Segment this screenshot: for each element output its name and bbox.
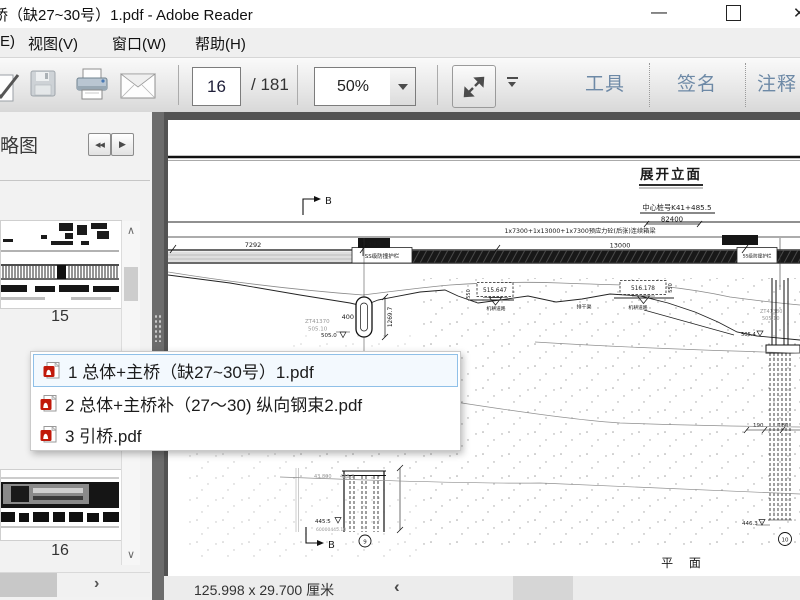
save-icon[interactable]: [30, 70, 56, 98]
borehole-elev-right: 505.10: [762, 316, 780, 322]
pier-number-9: 9: [363, 540, 367, 546]
plan-view-title: 平 面: [661, 556, 707, 570]
thumbnail-15-preview: [1, 221, 119, 306]
panel-options-button[interactable]: ▶: [111, 133, 134, 156]
menu-item-label: 2 总体+主桥补（27～30) 纵向钢束2.pdf: [65, 391, 362, 416]
pdf-file-icon: [43, 362, 60, 379]
menu-bar: E) 视图(V) 窗口(W) 帮助(H): [0, 28, 800, 58]
fill-sign-icon[interactable]: [0, 68, 21, 104]
pier-number-10: 10: [782, 538, 789, 544]
elevation-505-4: 505.4: [741, 332, 757, 338]
station-label: 中心桩号K41+485.5: [642, 203, 711, 212]
bridge-elevation-drawing: SS级防撞护栏 SS级防撞护栏 防撞网 防撞网 展开立面 中心桩号K41+485…: [168, 120, 800, 576]
panel-title: 略图: [0, 131, 38, 158]
toolbar-separator: [297, 65, 298, 105]
page-number-input[interactable]: 16: [192, 67, 241, 106]
title-bar: 桥（缺27~30号）1.pdf - Adobe Reader — ✕: [0, 0, 800, 28]
section-marker-b-bottom: B: [328, 540, 335, 551]
dim-7292: 7292: [245, 241, 262, 249]
borehole-zt41370: ZT41370: [305, 319, 330, 325]
menu-edit-partial[interactable]: E): [0, 33, 15, 50]
document-horizontal-scroll-thumb[interactable]: [513, 576, 573, 600]
elevation-446-3: 446.3: [742, 521, 758, 527]
zoom-dropdown-button[interactable]: [390, 67, 416, 106]
toolbar-separator: [745, 63, 747, 107]
menu-item-document-2[interactable]: 2 总体+主桥补（27～30) 纵向钢束2.pdf: [31, 388, 460, 419]
dim-550-right: 550: [668, 283, 674, 293]
document-size-label: 125.998 x 29.700 厘米: [194, 580, 334, 600]
divider-grip-icon: [154, 314, 162, 342]
fit-window-button[interactable]: [452, 65, 496, 108]
guardrail-label-left: SS级防撞护栏: [365, 252, 400, 260]
geo-445-10: 60000445.10: [316, 527, 346, 533]
page-total-label: / 181: [251, 75, 289, 95]
toolbar-separator: [437, 65, 438, 105]
drawing-title: 展开立面: [640, 166, 702, 183]
toolbar-separator: [649, 63, 651, 107]
maximize-button[interactable]: [726, 5, 741, 21]
window-title: 桥（缺27~30号）1.pdf - Adobe Reader: [0, 4, 253, 25]
dim-180: 180: [778, 423, 789, 429]
close-button[interactable]: ✕: [793, 4, 800, 22]
section-marker-b-top: B: [325, 196, 332, 207]
thumbnail-16-preview: [1, 470, 119, 538]
panel-divider: [0, 180, 150, 181]
dim-13000: 13000: [610, 242, 631, 250]
resize-arrows-icon: [462, 75, 486, 99]
borehole-elev-mid: 505.10: [308, 327, 328, 333]
collapse-panel-button[interactable]: ◀◀: [88, 133, 111, 156]
thumbnail-16-label[interactable]: 16: [0, 542, 120, 560]
thumbnails-horizontal-scrollbar[interactable]: ›: [0, 572, 150, 597]
dim-190: 190: [753, 423, 764, 429]
chevron-down-icon: [398, 84, 408, 90]
elevation-505-0: 505.0: [321, 333, 337, 339]
menu-view[interactable]: 视图(V): [28, 33, 78, 54]
sign-button[interactable]: 签名: [661, 69, 733, 96]
menu-item-label: 1 总体+主桥（缺27~30号）1.pdf: [68, 358, 314, 383]
pier-width-400: 400: [342, 313, 354, 321]
vertical-scroll-thumb[interactable]: [124, 267, 138, 301]
zoom-level-input[interactable]: 50%: [314, 67, 392, 106]
menu-item-document-1[interactable]: 1 总体+主桥（缺27~30号）1.pdf: [33, 354, 458, 387]
minimize-button[interactable]: —: [642, 0, 676, 26]
print-icon[interactable]: [74, 68, 110, 102]
elevation-516-178: 516.178: [631, 286, 655, 292]
pdf-file-icon: [40, 426, 57, 443]
menu-item-document-3[interactable]: 3 引桥.pdf: [31, 419, 460, 450]
horizontal-scroll-thumb[interactable]: [0, 573, 57, 597]
pier-height-1269: 1269.7: [388, 307, 394, 328]
menu-item-label: 3 引桥.pdf: [65, 422, 142, 447]
comment-button[interactable]: 注释: [757, 69, 800, 96]
road-label-1: 机耕道路: [486, 305, 505, 312]
total-length-dim: 82400: [661, 216, 683, 224]
menu-help[interactable]: 帮助(H): [195, 33, 246, 54]
toolbar-separator: [178, 65, 179, 105]
scroll-right-icon[interactable]: ›: [94, 575, 99, 593]
span-arrangement-label: 1x7300+1x13000+1x7300预应力砼(后张)连续箱梁: [504, 227, 655, 235]
scroll-up-icon[interactable]: ∧: [122, 224, 140, 237]
minus-icon: [507, 77, 518, 79]
canal-label: 排干渠: [576, 304, 591, 311]
page-thumbnail-16[interactable]: [0, 469, 122, 541]
borehole-zt41380: ZT41380: [760, 309, 782, 315]
scroll-down-icon[interactable]: ∨: [122, 548, 140, 561]
chevron-down-icon: [508, 82, 516, 87]
net-label-left: 防撞网: [366, 241, 381, 248]
tools-button[interactable]: 工具: [570, 69, 640, 96]
toolbar: 16 / 181 50% 工具 签名 注释: [0, 58, 800, 114]
document-status-bar: 125.998 x 29.700 厘米 ‹: [164, 576, 800, 600]
elevation-445-5: 445.5: [315, 519, 331, 525]
scroll-left-icon[interactable]: ‹: [394, 577, 400, 597]
road-label-2: 机耕道路: [628, 304, 647, 311]
page-thumbnail-15[interactable]: [0, 220, 122, 309]
pdf-page[interactable]: SS级防撞护栏 SS级防撞护栏 防撞网 防撞网 展开立面 中心桩号K41+485…: [168, 120, 800, 576]
toolbar-more-dropdown[interactable]: [506, 77, 518, 87]
menu-window[interactable]: 窗口(W): [112, 33, 166, 54]
thumbnail-15-label[interactable]: 15: [0, 308, 120, 326]
pdf-file-icon: [40, 395, 57, 412]
open-documents-menu: 1 总体+主桥（缺27~30号）1.pdf 2 总体+主桥补（27～30) 纵向…: [30, 351, 461, 451]
elevation-515-647: 515.647: [483, 288, 507, 294]
net-label-right: 防撞网: [732, 238, 747, 245]
guardrail-label-right: SS级防撞护栏: [743, 253, 772, 260]
email-icon[interactable]: [120, 73, 156, 99]
dim-550-left: 550: [466, 289, 472, 299]
